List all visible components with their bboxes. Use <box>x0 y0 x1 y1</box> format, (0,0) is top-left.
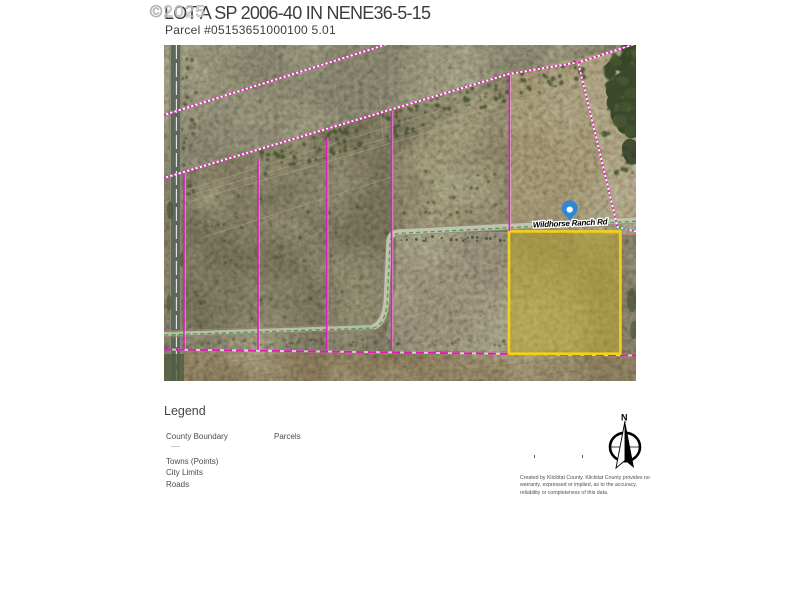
svg-text:N: N <box>621 413 628 423</box>
